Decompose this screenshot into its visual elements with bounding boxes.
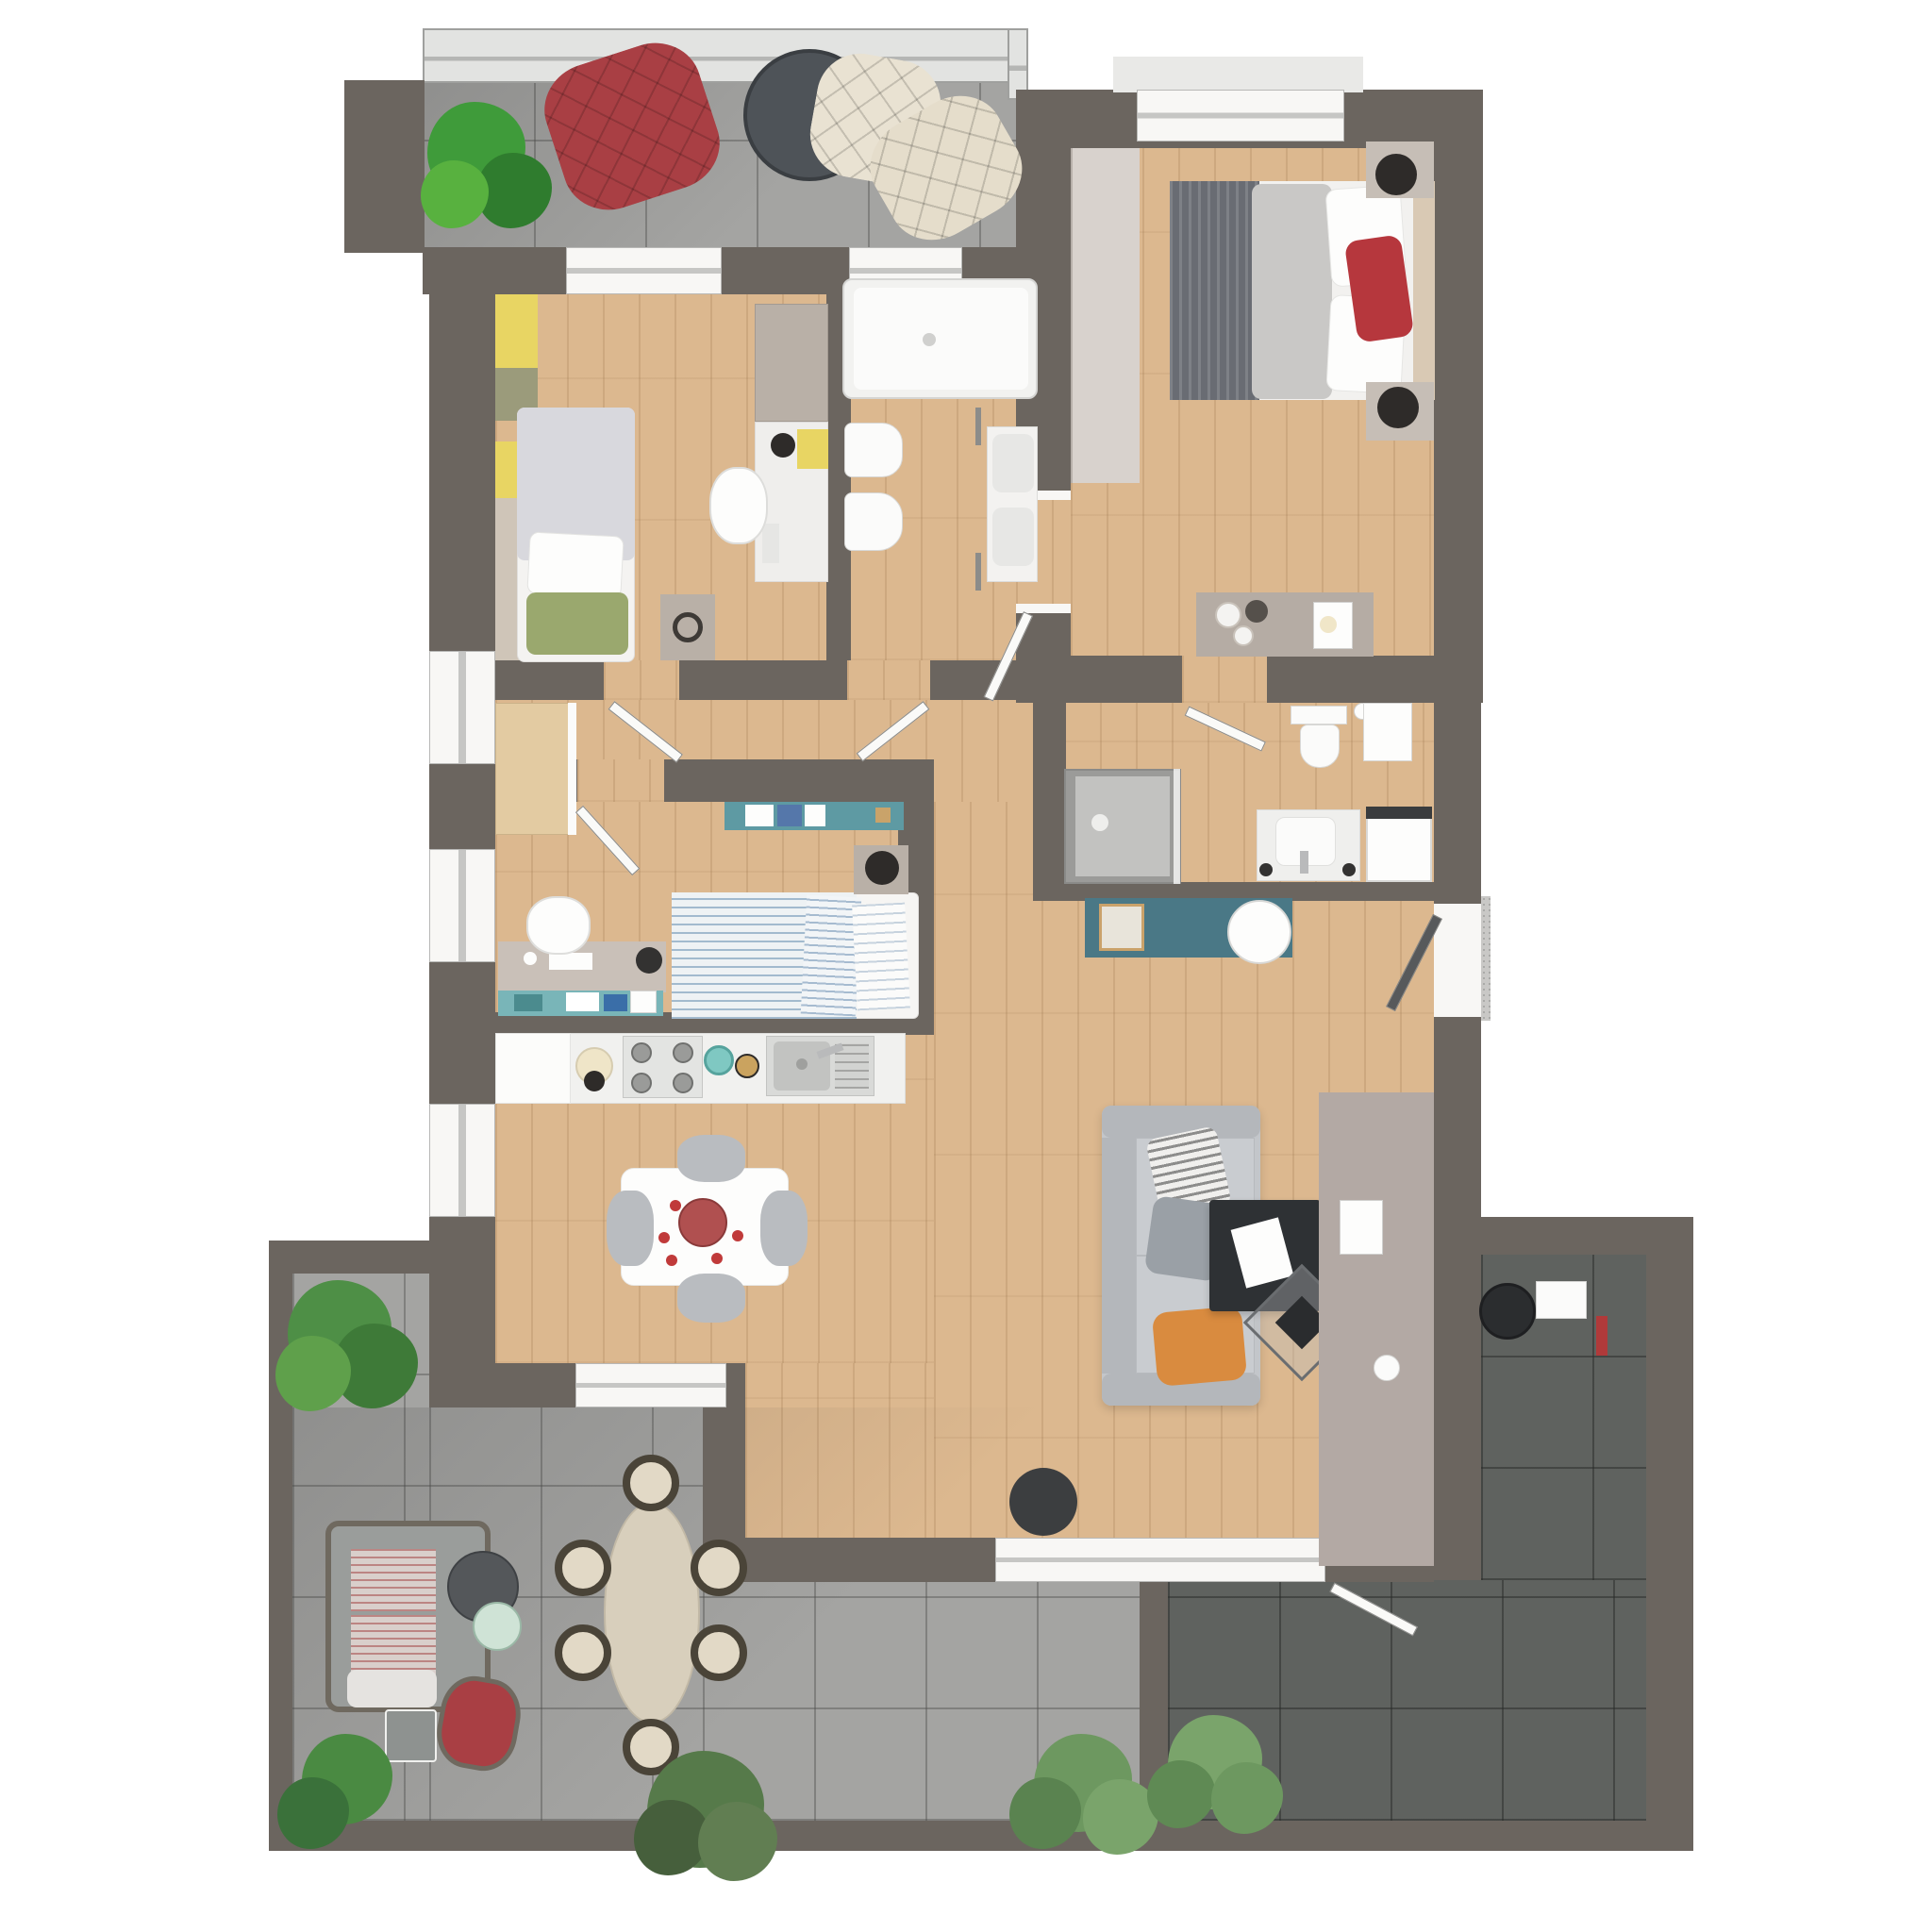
wall-left-main bbox=[429, 247, 495, 1407]
window-master-sill bbox=[1113, 57, 1363, 92]
apple-4 bbox=[711, 1253, 723, 1264]
master-wardrobe bbox=[1071, 148, 1140, 483]
shelf-item bbox=[875, 808, 891, 823]
entry-round-chair bbox=[1227, 900, 1291, 964]
b3-organizer-item2 bbox=[566, 992, 599, 1011]
master-bed-headboard bbox=[1410, 181, 1435, 400]
kids-ring-lamp bbox=[673, 612, 703, 642]
wicker-chair-1 bbox=[623, 1455, 679, 1511]
b3-keyboard bbox=[549, 953, 592, 970]
bbq-grill bbox=[1479, 1283, 1536, 1340]
dining-chair-left bbox=[607, 1191, 654, 1266]
dining-chair-bottom bbox=[677, 1274, 745, 1323]
wall-terrace-left bbox=[344, 80, 425, 253]
dresser-vase-1 bbox=[1215, 602, 1241, 628]
dining-chair-top bbox=[677, 1135, 745, 1182]
toilet-bath2-tank bbox=[1291, 706, 1347, 724]
burner-3 bbox=[631, 1073, 652, 1093]
wall-terrace-dark-right bbox=[1646, 1217, 1693, 1851]
window-left-2 bbox=[429, 849, 495, 962]
gas-bottle bbox=[1596, 1316, 1607, 1356]
dresser-vase-2 bbox=[1245, 600, 1268, 623]
shelf-book-1 bbox=[745, 805, 774, 826]
apple-2 bbox=[658, 1232, 670, 1243]
board-wood bbox=[735, 1054, 759, 1078]
kids-bed-pillow bbox=[526, 531, 624, 598]
toilet-bath1 bbox=[844, 423, 903, 477]
basin-bath1-a bbox=[992, 434, 1034, 492]
b3-organizer-item3 bbox=[604, 994, 627, 1011]
sofa-pillow-orange bbox=[1152, 1306, 1247, 1387]
hall-closet-door bbox=[568, 703, 576, 835]
cistern-cabinet bbox=[1363, 703, 1412, 761]
shower-head bbox=[1091, 814, 1108, 831]
toilet-bath2-bowl bbox=[1300, 724, 1340, 768]
console-tray bbox=[1099, 904, 1144, 951]
kids-desk-lamp bbox=[771, 433, 795, 458]
outdoor-sofa-cushion-b bbox=[351, 1615, 436, 1677]
oval-dining-table bbox=[604, 1502, 700, 1724]
bidet-bath1 bbox=[844, 492, 903, 551]
b3-chair bbox=[526, 896, 591, 955]
window-left-3 bbox=[429, 1104, 495, 1217]
window-kids-bedroom bbox=[566, 247, 722, 294]
tv-device bbox=[1340, 1200, 1383, 1255]
towel-bar-b bbox=[975, 553, 981, 591]
burner-4 bbox=[673, 1073, 693, 1093]
dining-chair-right bbox=[760, 1191, 808, 1266]
faucet-bath2 bbox=[1300, 851, 1308, 874]
fruit-bowl bbox=[678, 1198, 727, 1247]
kids-desk-chair bbox=[709, 467, 768, 544]
kids-bed-green-pillow bbox=[526, 592, 628, 655]
dresser-candle bbox=[1320, 616, 1337, 633]
window-left-1 bbox=[429, 651, 495, 764]
kitchen-columns bbox=[495, 1033, 571, 1104]
soap-bath2-a bbox=[1259, 863, 1273, 876]
burner-2 bbox=[673, 1042, 693, 1063]
outdoor-ottoman bbox=[385, 1709, 437, 1762]
shelf-book-2 bbox=[777, 805, 802, 826]
wall-corridor-right bbox=[1033, 703, 1066, 901]
burner-1 bbox=[631, 1042, 652, 1063]
floor-pouf bbox=[1009, 1468, 1077, 1536]
washing-machine-top bbox=[1366, 807, 1432, 819]
tv-console bbox=[1319, 1092, 1434, 1566]
dresser-vase-3 bbox=[1233, 625, 1254, 646]
kids-tall-cabinet bbox=[755, 304, 828, 422]
apple-1 bbox=[670, 1200, 681, 1211]
b3-organizer-books bbox=[630, 991, 657, 1013]
b3-desk-lamp bbox=[636, 947, 662, 974]
wall-master-right bbox=[1434, 90, 1483, 703]
kettle-handle bbox=[584, 1071, 605, 1091]
soap-bath2-b bbox=[1342, 863, 1356, 876]
b3-mouse bbox=[524, 952, 537, 965]
wicker-chair-5 bbox=[691, 1540, 747, 1596]
doorgap-bath2 bbox=[1182, 656, 1267, 703]
basin-bath1-b bbox=[992, 508, 1034, 566]
wicker-chair-6 bbox=[691, 1624, 747, 1681]
doorgap-kids bbox=[604, 660, 679, 700]
tree-bottom-3 bbox=[698, 1802, 777, 1881]
bathtub-drain bbox=[923, 333, 936, 346]
master-bed-blanket bbox=[1170, 181, 1259, 400]
b3-organizer-item1 bbox=[514, 994, 542, 1011]
tv-lamp bbox=[1374, 1355, 1400, 1381]
sofa-back bbox=[1102, 1138, 1136, 1374]
hall-closet bbox=[495, 703, 575, 835]
kids-desk-yellow-unit bbox=[797, 429, 828, 469]
terrace-top-railing bbox=[423, 28, 1028, 83]
board-teal bbox=[704, 1045, 734, 1075]
master-lamp-a bbox=[1375, 154, 1417, 195]
b3-pillow-b bbox=[852, 903, 910, 1011]
wall-right-main bbox=[1434, 703, 1481, 1580]
towel-bar-a bbox=[975, 408, 981, 445]
master-lamp-b bbox=[1377, 387, 1419, 428]
floor-plan-canvas bbox=[0, 0, 1932, 1932]
b3-lamp bbox=[865, 851, 899, 885]
wicker-chair-4 bbox=[555, 1624, 611, 1681]
patio-table-mint bbox=[473, 1602, 522, 1651]
outdoor-sink bbox=[1536, 1281, 1587, 1319]
shower-glass bbox=[1174, 769, 1180, 884]
sink-drain bbox=[796, 1058, 808, 1070]
bathtub-basin bbox=[854, 288, 1028, 390]
doorgap-bedroom3 bbox=[577, 759, 664, 802]
shower-tray bbox=[1075, 776, 1170, 876]
doorgap-bath1 bbox=[847, 660, 930, 700]
wicker-chair-3 bbox=[555, 1540, 611, 1596]
shelf-book-3 bbox=[805, 805, 825, 826]
sliding-door-living bbox=[995, 1538, 1325, 1582]
wardrobe-cube-1 bbox=[495, 294, 538, 368]
wall-terrace2-topleft bbox=[269, 1241, 434, 1274]
outdoor-sofa-cushion-a bbox=[351, 1549, 436, 1611]
sliding-door-dining bbox=[575, 1363, 726, 1407]
apple-5 bbox=[732, 1230, 743, 1241]
master-bed-duvet bbox=[1252, 184, 1332, 399]
outdoor-sofa-pillow bbox=[347, 1670, 437, 1707]
kids-desk-keyboard bbox=[762, 524, 779, 563]
apple-3 bbox=[666, 1255, 677, 1266]
window-master-bedroom bbox=[1137, 90, 1344, 142]
